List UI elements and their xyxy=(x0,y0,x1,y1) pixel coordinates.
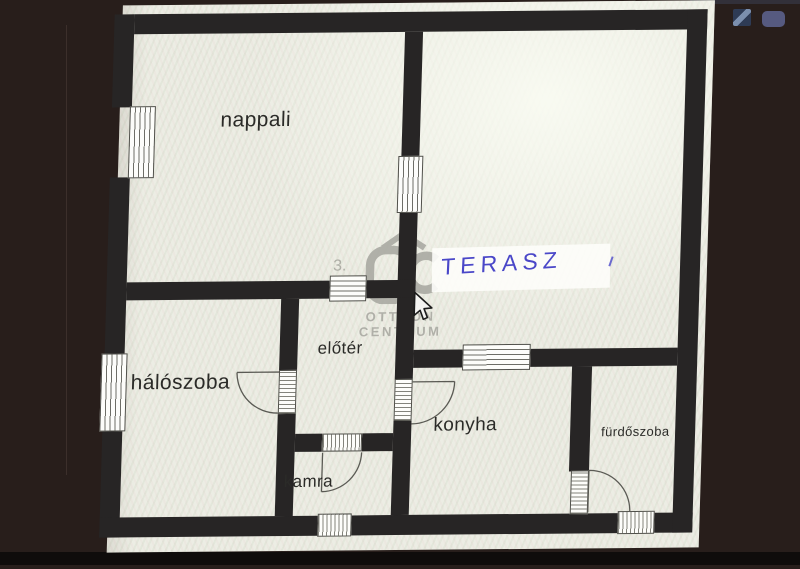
room-label-haloszoba: hálószoba xyxy=(130,370,230,395)
wall-exterior-bottom xyxy=(349,513,620,535)
wall-interior-vertical xyxy=(401,32,423,158)
wall-terasz-bottom xyxy=(413,349,463,367)
window-furdoszoba-bottom xyxy=(617,511,655,534)
mouse-cursor-icon xyxy=(412,291,433,322)
window-nappali-terasz xyxy=(397,156,424,213)
window-haloszoba-left xyxy=(99,353,127,431)
wall-haloszoba-right xyxy=(279,299,299,371)
room-label-kamra: kamra xyxy=(283,472,333,492)
wall-kamra-top xyxy=(362,433,394,451)
wall-kamra-top xyxy=(295,434,323,452)
door-konyha-hatch xyxy=(394,379,413,421)
wall-terasz-bottom xyxy=(530,348,678,367)
photo-background: OTTHON CENTRUM xyxy=(0,0,800,565)
wall-haloszoba-right xyxy=(275,413,296,516)
room-label-eloter: előtér xyxy=(317,338,363,358)
window-kamra-bottom xyxy=(317,513,352,536)
door-haloszoba-hatch xyxy=(278,370,297,414)
floorplan: OTTHON CENTRUM xyxy=(0,0,800,569)
wall-interior-vertical xyxy=(391,420,412,515)
room-label-furdoszoba: fürdőszoba xyxy=(601,424,670,440)
faint-room-number: 3. xyxy=(333,257,347,275)
room-label-nappali: nappali xyxy=(220,108,291,133)
door-furdoszoba-hatch xyxy=(570,470,589,514)
wall-nappali-bottom xyxy=(366,280,416,298)
wall-konyha-furdoszoba xyxy=(569,366,592,471)
window-nappali-eloter xyxy=(329,275,367,301)
window-konyha-terasz xyxy=(462,344,531,371)
window-nappali-left xyxy=(128,106,156,178)
room-label-konyha: konyha xyxy=(433,414,497,437)
wall-exterior-left xyxy=(112,14,135,107)
wall-nappali-bottom xyxy=(126,281,330,301)
door-kamra-hatch xyxy=(322,433,363,451)
wall-exterior-bottom xyxy=(99,516,320,538)
